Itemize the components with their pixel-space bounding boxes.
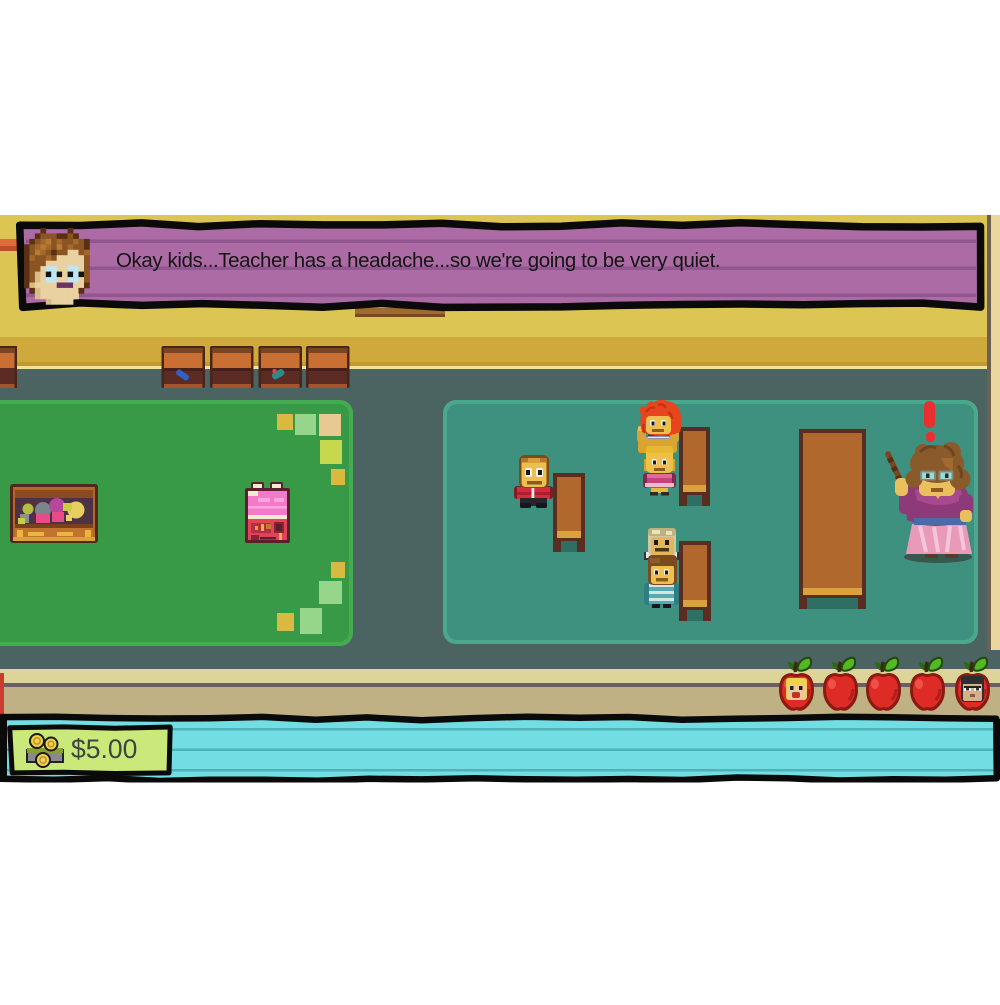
svg-text:$5.00: $5.00 — [71, 734, 137, 764]
svg-text:Okay kids...Teacher has a head: Okay kids...Teacher has a headache...so … — [116, 249, 720, 272]
